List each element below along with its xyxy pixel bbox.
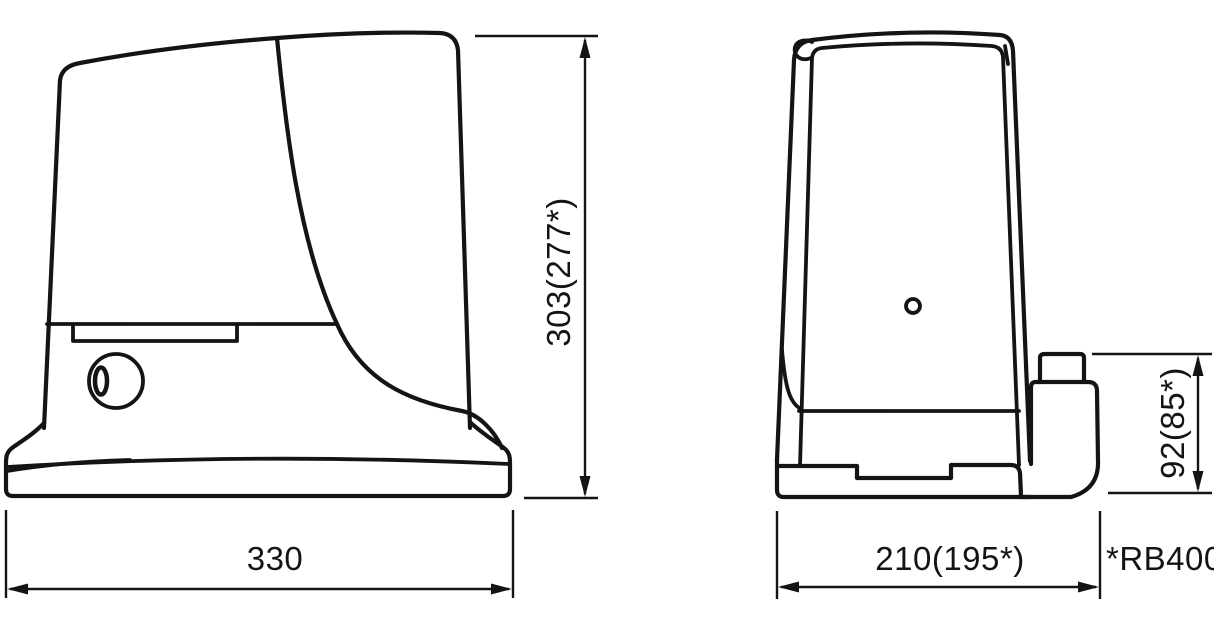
front-view-release-lever [1040, 354, 1084, 382]
dim-arrow-down [580, 476, 591, 497]
side-view [6, 33, 510, 496]
front-height-dimension: 92(85*) [1092, 354, 1212, 493]
gate-operator-dimension-drawing: 303(277*) 330 [0, 0, 1214, 623]
front-view-release-housing [1021, 382, 1098, 497]
front-view-cover-bottom-curve [782, 350, 801, 409]
side-view-release-door-slot [73, 326, 237, 341]
front-view-screw-hole [906, 299, 920, 313]
front-view-lid-corner-tick [1005, 46, 1008, 64]
dim-arrow-down [1193, 471, 1204, 492]
front-view-body-outline [777, 32, 1030, 461]
front-view [777, 32, 1098, 497]
front-width-dimension: 210(195*) [777, 511, 1100, 599]
front-width-label: 210(195*) [875, 540, 1024, 577]
keyhole-icon [95, 368, 107, 395]
front-height-label: 92(85*) [1154, 367, 1191, 479]
side-view-body-outline [44, 33, 470, 428]
side-width-dimension: 330 [6, 510, 513, 598]
dim-arrow-up [1193, 355, 1204, 376]
side-height-dimension: 303(277*) [475, 36, 598, 498]
side-height-label: 303(277*) [540, 197, 577, 346]
side-width-label: 330 [247, 540, 304, 577]
front-view-base-top-edge [778, 465, 1021, 496]
dim-arrow-right [1078, 582, 1099, 593]
dim-arrow-left [778, 582, 799, 593]
dim-arrow-right [491, 584, 512, 595]
dim-arrow-left [7, 584, 28, 595]
front-view-lid-inner-line [800, 43, 1019, 466]
technical-drawing-page: 303(277*) 330 [0, 0, 1214, 623]
model-variant-note: *RB400 [1106, 540, 1214, 577]
dim-arrow-up [580, 37, 591, 58]
